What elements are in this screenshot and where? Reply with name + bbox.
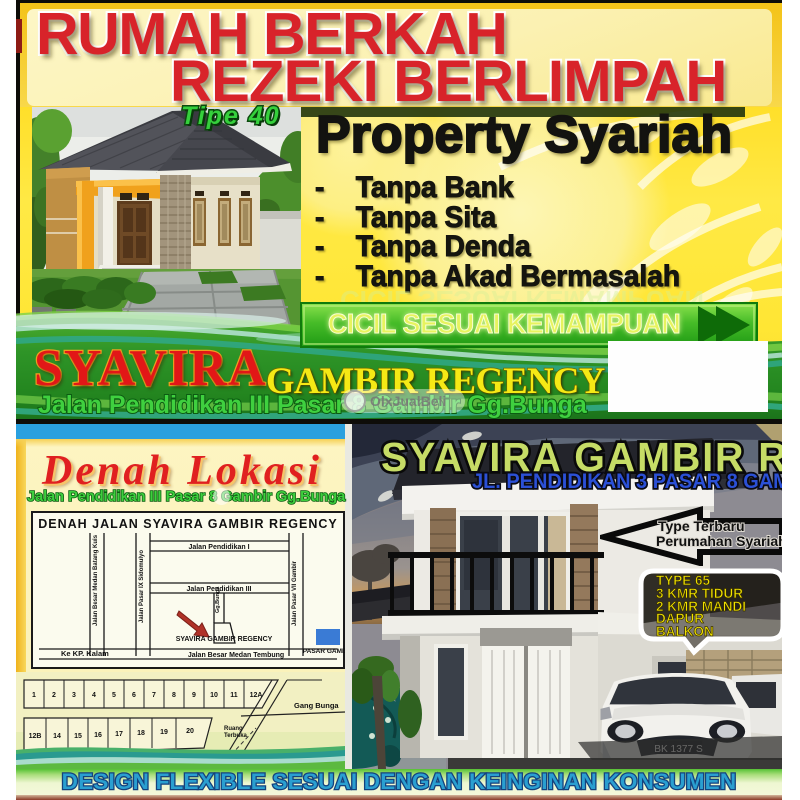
svg-text:17: 17 [115,731,123,738]
svg-text:18: 18 [137,730,145,737]
svg-text:16: 16 [94,732,102,739]
svg-text:5: 5 [112,692,116,699]
svg-text:Gang Bunga: Gang Bunga [294,701,339,710]
svg-text:3: 3 [72,692,76,699]
svg-text:8: 8 [172,692,176,699]
svg-text:PASAR GAMBIR: PASAR GAMBIR [303,648,345,655]
svg-text:Gg.Bunga: Gg.Bunga [215,586,221,613]
svg-text:1: 1 [32,692,36,699]
svg-text:7: 7 [152,692,156,699]
svg-text:Terbuka: Terbuka [224,733,248,739]
svg-text:Ke KP. Kalam: Ke KP. Kalam [61,649,109,658]
svg-text:Ruang: Ruang [224,726,243,732]
svg-text:6: 6 [132,692,136,699]
svg-text:DENAH JALAN SYAVIRA GAMBIR REG: DENAH JALAN SYAVIRA GAMBIR REGENCY [38,517,338,531]
svg-text:2: 2 [52,692,56,699]
svg-text:20: 20 [186,728,194,735]
svg-text:9: 9 [192,692,196,699]
svg-text:12B: 12B [29,733,42,740]
svg-text:19: 19 [160,729,168,736]
svg-text:14: 14 [53,733,61,740]
svg-text:Jalan Besar Medan Batang Kuis: Jalan Besar Medan Batang Kuis [93,534,99,626]
svg-text:15: 15 [74,733,82,740]
svg-text:Jalan Pendidikan I: Jalan Pendidikan I [188,544,249,551]
svg-text:Jalan Besar Medan Tembung: Jalan Besar Medan Tembung [188,652,284,659]
svg-text:Jalan Pasar IX Sidomulyo: Jalan Pasar IX Sidomulyo [139,550,145,623]
svg-text:SYAVIRA GAMBIR REGENCY: SYAVIRA GAMBIR REGENCY [176,636,273,643]
svg-text:11: 11 [230,692,238,699]
svg-text:10: 10 [210,692,218,699]
svg-text:Jalan Pasar VII Gambir: Jalan Pasar VII Gambir [292,560,298,626]
svg-text:4: 4 [92,692,96,699]
